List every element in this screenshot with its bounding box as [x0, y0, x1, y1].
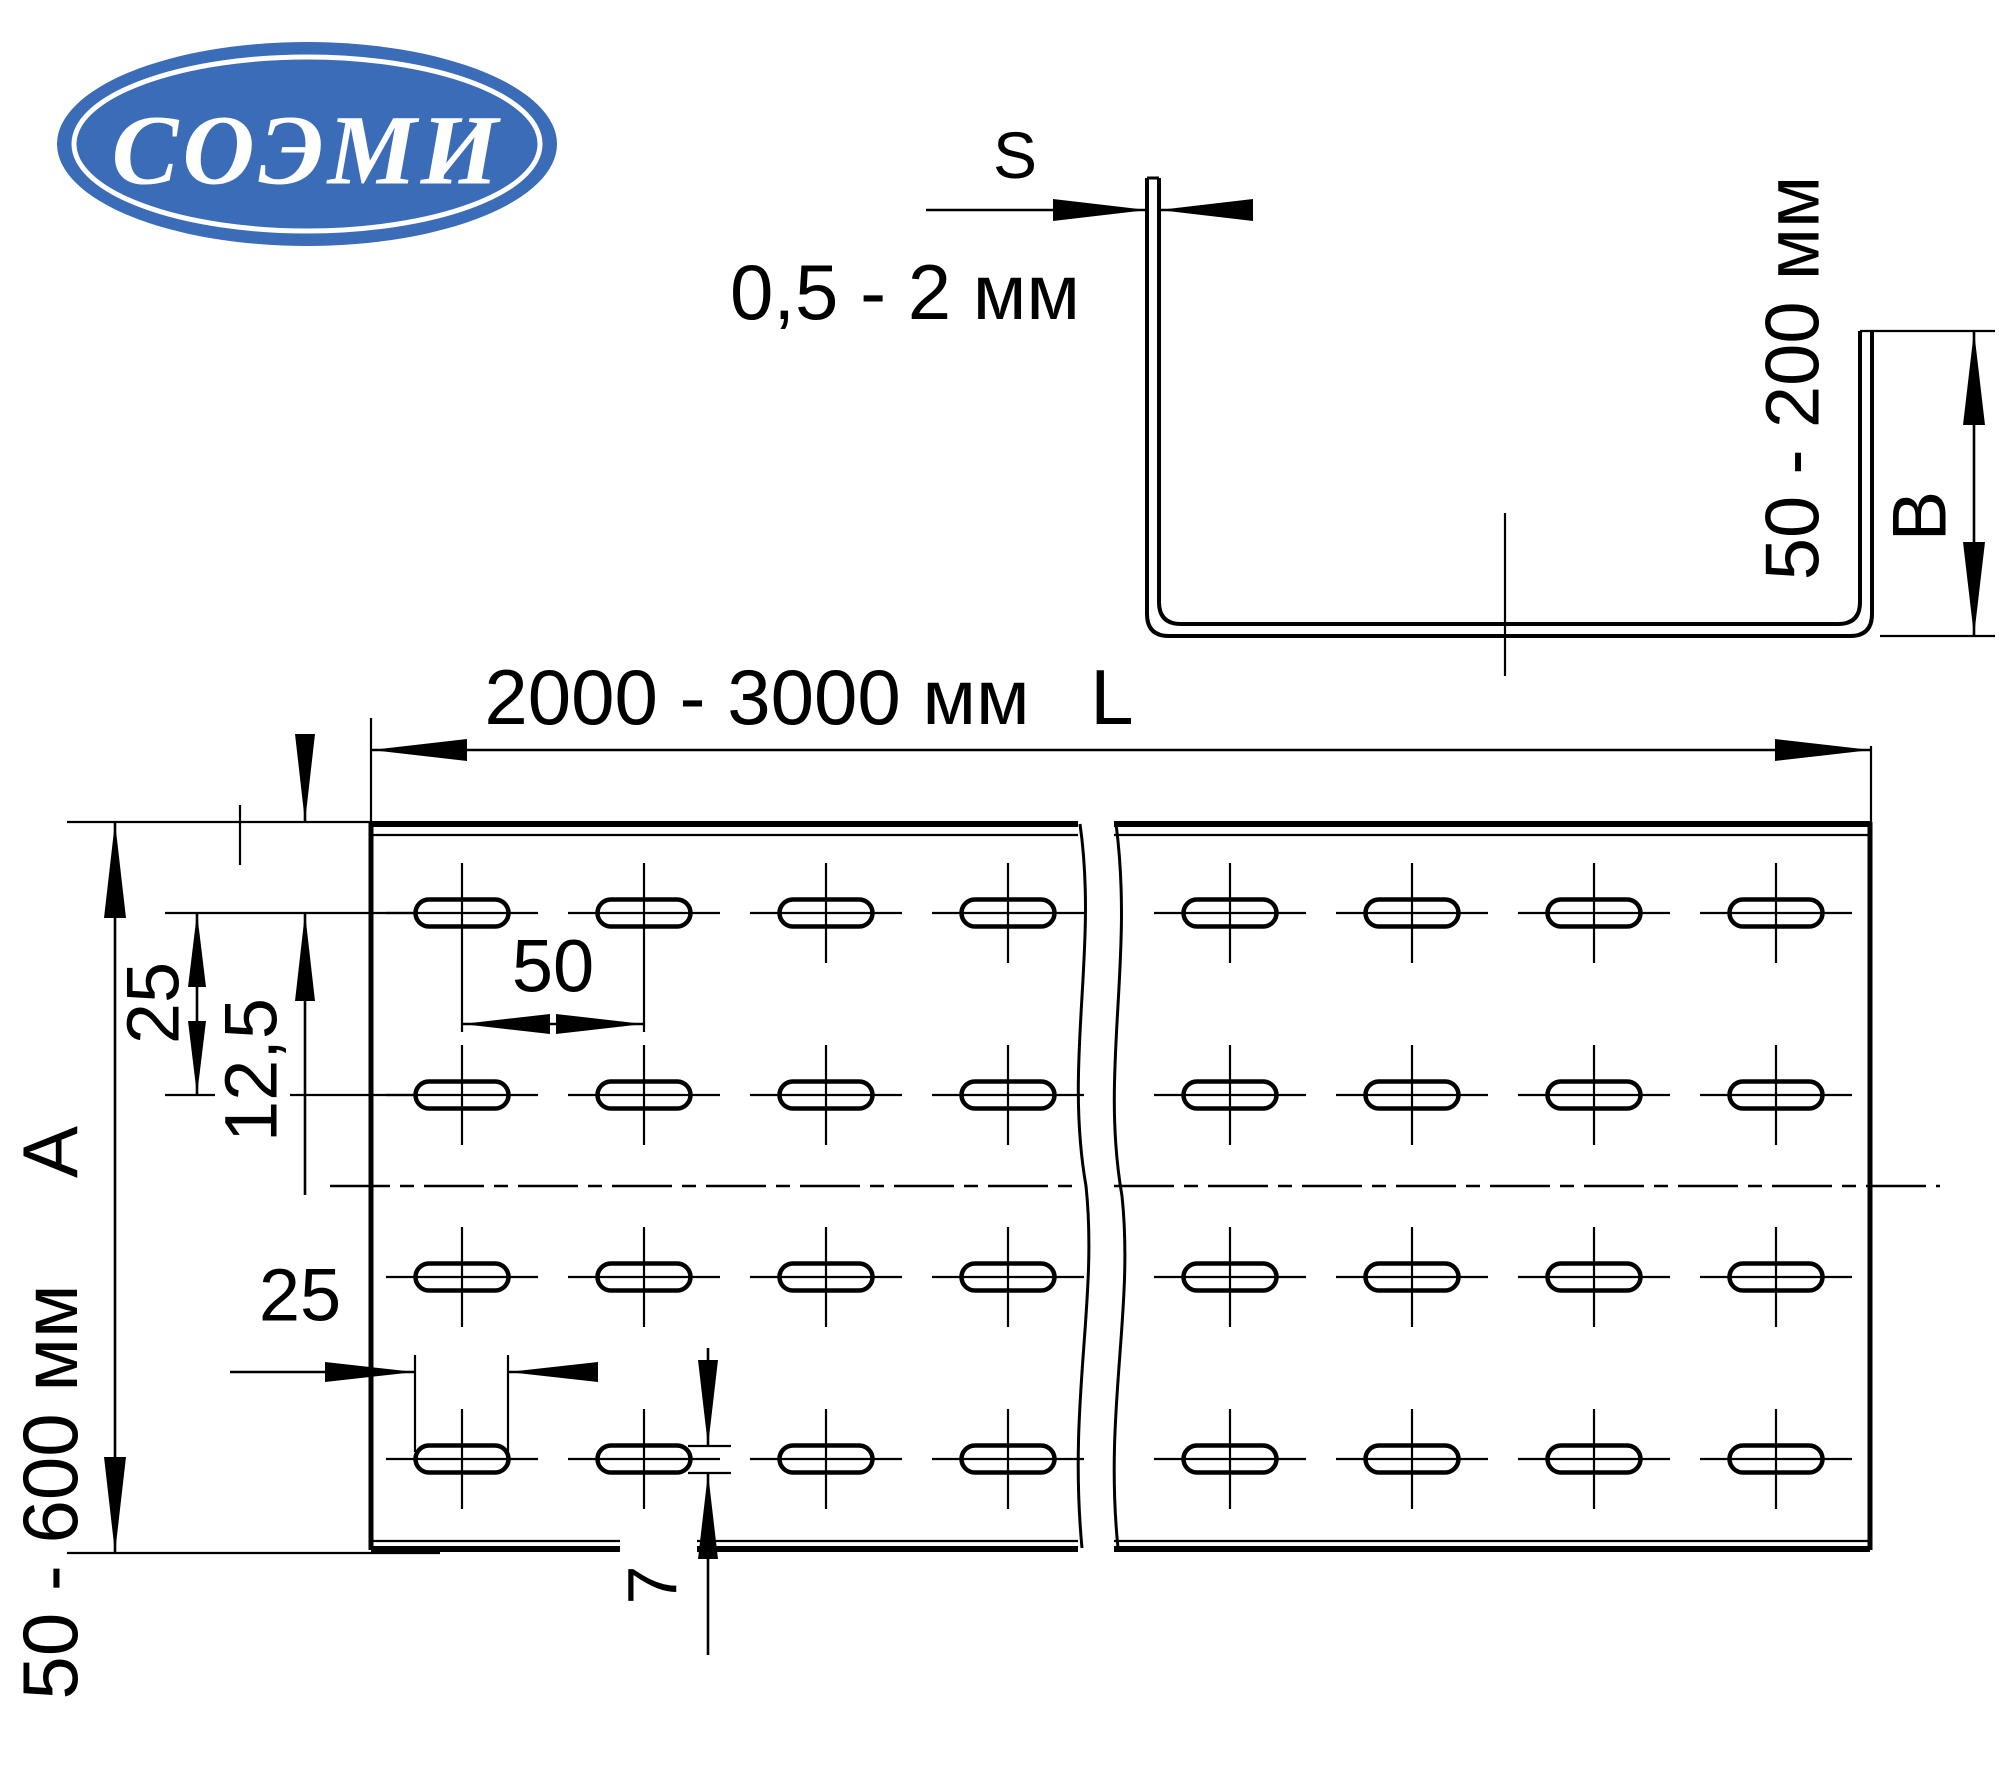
slot-hole: [568, 1045, 720, 1145]
height-letter: B: [1878, 491, 1963, 542]
slot-hole: [1700, 1045, 1852, 1145]
slot-hole: [386, 1227, 538, 1327]
slot-hole: [932, 863, 1084, 963]
slot-hole: [1154, 1045, 1306, 1145]
plan-view: 2000 - 3000 мм L A 50 - 600 мм 25: [6, 653, 1940, 1700]
dimension-first-row-offset: 12,5: [210, 734, 316, 1195]
thickness-range: 0,5 - 2 мм: [730, 248, 1080, 336]
slot-hole: [1336, 1045, 1488, 1145]
slot-length-value: 25: [259, 1254, 341, 1337]
profile-view: S 0,5 - 2 мм 50 - 200 мм B: [730, 118, 1995, 676]
thickness-letter: S: [993, 118, 1037, 192]
company-logo: СОЭМИ: [57, 42, 557, 246]
slot-hole: [1518, 1409, 1670, 1509]
drawing-page: СОЭМИ S 0,5 - 2 мм 50 - 200 мм B: [0, 0, 2000, 1771]
slot-hole: [568, 1227, 720, 1327]
slot-hole: [1154, 1409, 1306, 1509]
slot-hole: [932, 1227, 1084, 1327]
slot-hole: [1336, 1409, 1488, 1509]
length-letter: L: [1090, 653, 1133, 741]
hole-pitch-value: 50: [512, 925, 594, 1008]
slot-hole: [750, 1045, 902, 1145]
dimension-thickness-s: S 0,5 - 2 мм: [730, 118, 1253, 336]
slot-hole: [1336, 863, 1488, 963]
first-row-offset-value: 12,5: [210, 998, 293, 1142]
technical-drawing: СОЭМИ S 0,5 - 2 мм 50 - 200 мм B: [0, 0, 2000, 1771]
slot-hole: [386, 1409, 538, 1509]
slot-width-value: 7: [613, 1566, 691, 1605]
slot-hole: [1154, 863, 1306, 963]
dimension-width-a: A 50 - 600 мм: [6, 805, 440, 1700]
break-line-left: [1078, 824, 1089, 1548]
dimension-length-l: 2000 - 3000 мм L: [371, 653, 1871, 824]
height-range: 50 - 200 мм: [1751, 176, 1836, 581]
length-range: 2000 - 3000 мм: [484, 653, 1029, 741]
slot-hole: [1518, 1227, 1670, 1327]
logo-text: СОЭМИ: [112, 95, 503, 206]
slot-hole: [1700, 863, 1852, 963]
slot-hole: [750, 863, 902, 963]
slot-hole: [932, 1045, 1084, 1145]
slot-hole: [932, 1409, 1084, 1509]
slot-hole: [1518, 1045, 1670, 1145]
slot-hole: [1518, 863, 1670, 963]
slot-hole: [750, 1409, 902, 1509]
dimension-slot-width-7: 7: [613, 1348, 731, 1655]
width-letter: A: [6, 1126, 94, 1178]
slot-hole: [568, 1409, 720, 1509]
width-range: 50 - 600 мм: [6, 1284, 94, 1699]
slot-hole: [1700, 1227, 1852, 1327]
slot-hole: [1336, 1227, 1488, 1327]
slot-hole: [1154, 1227, 1306, 1327]
dimension-hole-pitch-50: 50: [462, 925, 644, 1035]
slot-hole: [1700, 1409, 1852, 1509]
slot-hole: [750, 1227, 902, 1327]
dimension-slot-length-25: 25: [230, 1254, 598, 1453]
row-pitch-value: 25: [112, 962, 195, 1044]
